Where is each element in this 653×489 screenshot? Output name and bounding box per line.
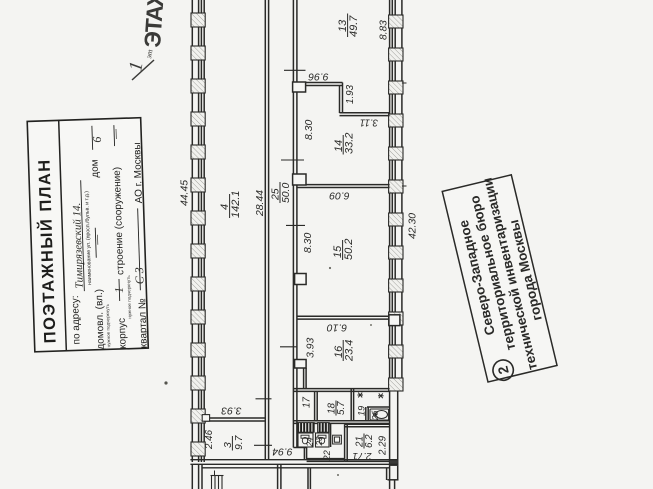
svg-text:49.7: 49.7 — [348, 15, 360, 37]
svg-text:ЭТАЖ: ЭТАЖ — [139, 0, 169, 48]
svg-text:33.2: 33.2 — [343, 133, 355, 154]
svg-text:50.2: 50.2 — [343, 239, 355, 260]
svg-text:28.44: 28.44 — [255, 190, 266, 217]
svg-text:17: 17 — [302, 397, 313, 408]
svg-text:6.10: 6.10 — [327, 322, 347, 333]
svg-text:3.93: 3.93 — [221, 405, 241, 416]
svg-text:АО г. Москвы: АО г. Москвы — [132, 142, 145, 203]
svg-text:23.4: 23.4 — [343, 340, 355, 362]
svg-text:1: 1 — [125, 60, 147, 73]
svg-text:6.09: 6.09 — [329, 190, 349, 201]
svg-text:50.0: 50.0 — [281, 183, 292, 203]
svg-text:9.96: 9.96 — [308, 71, 328, 82]
svg-text:2б: 2б — [371, 410, 380, 421]
svg-text:22: 22 — [322, 450, 332, 461]
svg-text:142.1: 142.1 — [230, 190, 242, 218]
svg-text:3.11: 3.11 — [360, 117, 378, 128]
svg-text:—: — — [92, 235, 103, 245]
svg-text:8.83: 8.83 — [379, 20, 390, 40]
svg-text:по адресу:: по адресу: — [70, 295, 83, 344]
svg-text:эт: эт — [144, 49, 154, 60]
svg-text:—: — — [111, 129, 122, 139]
svg-text:2.71: 2.71 — [352, 450, 372, 461]
svg-text:9.94: 9.94 — [272, 446, 292, 457]
svg-text:24: 24 — [306, 437, 315, 448]
svg-text:5.7: 5.7 — [336, 401, 347, 415]
svg-text:3.93: 3.93 — [306, 338, 317, 358]
svg-text:42.30: 42.30 — [408, 213, 419, 239]
svg-text:1.93: 1.93 — [345, 84, 356, 104]
svg-text:23: 23 — [315, 436, 324, 447]
svg-text:2.29: 2.29 — [378, 435, 389, 456]
svg-text:44.45: 44.45 — [180, 180, 191, 206]
svg-text:8.30: 8.30 — [304, 120, 315, 140]
svg-text:19: 19 — [356, 406, 366, 416]
svg-text:квартал №: квартал № — [137, 298, 150, 348]
svg-text:2.46: 2.46 — [204, 429, 215, 450]
svg-text:8.30: 8.30 — [303, 233, 314, 253]
svg-text:9.7: 9.7 — [234, 434, 245, 450]
svg-text:дом: дом — [89, 159, 101, 178]
svg-text:6.2: 6.2 — [364, 434, 375, 448]
svg-text:корпус: корпус — [117, 318, 129, 349]
